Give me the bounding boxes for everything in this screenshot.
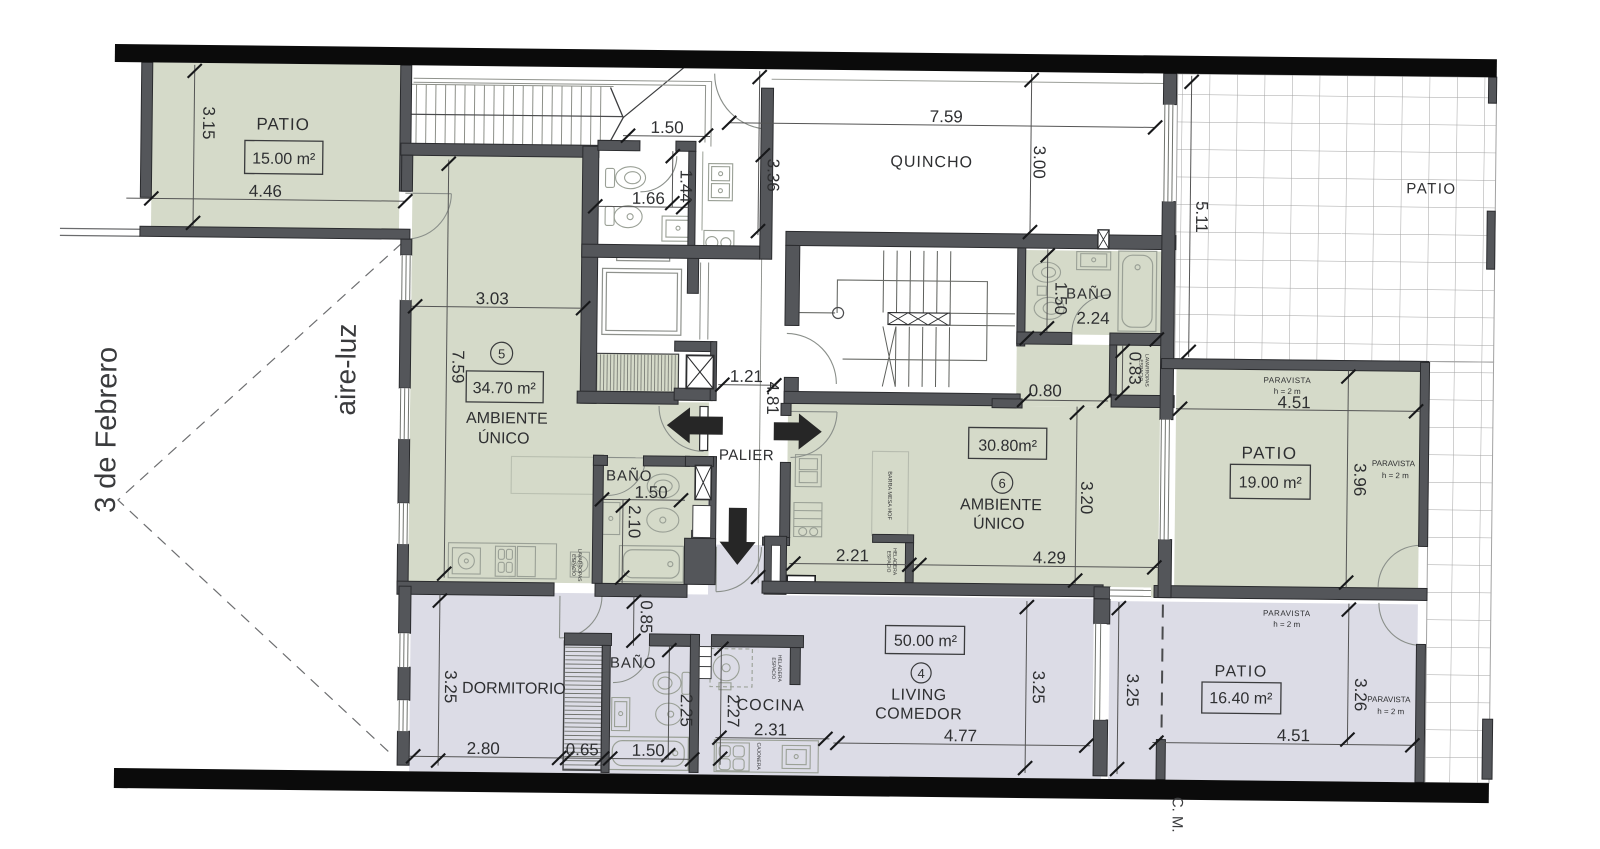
svg-text:PARAVISTA: PARAVISTA — [1372, 459, 1416, 468]
svg-text:1.50: 1.50 — [632, 741, 665, 760]
svg-text:PATIO: PATIO — [256, 115, 310, 135]
svg-text:3.36: 3.36 — [763, 159, 782, 192]
svg-text:4: 4 — [917, 666, 924, 681]
svg-text:C. M.: C. M. — [1168, 797, 1185, 833]
svg-text:HELADERA: HELADERA — [891, 548, 897, 576]
svg-text:COCINA: COCINA — [737, 697, 805, 715]
svg-text:PARAVISTA: PARAVISTA — [1263, 609, 1311, 619]
svg-text:BAÑO: BAÑO — [1066, 285, 1113, 303]
svg-text:3.20: 3.20 — [1077, 481, 1096, 514]
svg-text:AMBIENTE: AMBIENTE — [466, 410, 548, 428]
svg-text:34.70 m²: 34.70 m² — [473, 380, 537, 398]
svg-text:BARRA MESA HOF: BARRA MESA HOF — [886, 471, 893, 520]
svg-text:BAÑO: BAÑO — [606, 467, 653, 485]
svg-text:2.31: 2.31 — [754, 720, 787, 739]
svg-text:3.25: 3.25 — [1029, 671, 1048, 704]
svg-text:0.65: 0.65 — [566, 740, 599, 759]
svg-text:QUINCHO: QUINCHO — [890, 154, 973, 172]
svg-text:BAÑO: BAÑO — [610, 654, 657, 672]
svg-text:4.81: 4.81 — [763, 382, 782, 415]
svg-text:4.46: 4.46 — [249, 181, 282, 200]
svg-text:0.85: 0.85 — [637, 600, 656, 633]
svg-text:1.44: 1.44 — [676, 170, 695, 203]
svg-text:2.24: 2.24 — [1076, 309, 1109, 328]
svg-text:3 de Febrero: 3 de Febrero — [90, 347, 124, 513]
svg-text:ESPACIO: ESPACIO — [1137, 359, 1143, 381]
svg-text:DORMITORIO: DORMITORIO — [462, 680, 566, 698]
svg-text:LIVING: LIVING — [891, 687, 947, 705]
svg-text:4.51: 4.51 — [1277, 726, 1310, 745]
svg-text:5.11: 5.11 — [1192, 201, 1211, 233]
svg-text:15.00 m²: 15.00 m² — [252, 151, 316, 169]
svg-text:ESPACIO: ESPACIO — [570, 554, 576, 576]
svg-text:2.25: 2.25 — [677, 694, 696, 727]
svg-text:AMBIENTE: AMBIENTE — [960, 496, 1042, 514]
svg-text:3.03: 3.03 — [476, 289, 509, 308]
svg-text:h = 2 m: h = 2 m — [1273, 620, 1300, 629]
svg-text:7.59: 7.59 — [448, 350, 467, 383]
svg-text:h = 2 m: h = 2 m — [1377, 707, 1404, 716]
svg-text:ESPACIO: ESPACIO — [770, 657, 776, 679]
svg-text:0.80: 0.80 — [1029, 381, 1062, 400]
svg-text:PALIER: PALIER — [719, 447, 774, 465]
svg-text:COMEDOR: COMEDOR — [875, 705, 962, 723]
svg-text:19.00 m²: 19.00 m² — [1239, 474, 1303, 492]
svg-text:PATIO: PATIO — [1406, 180, 1456, 198]
svg-text:PATIO: PATIO — [1215, 663, 1268, 681]
svg-text:1.50: 1.50 — [634, 483, 667, 502]
svg-text:LAVARROPAS: LAVARROPAS — [576, 549, 582, 583]
svg-text:6: 6 — [999, 476, 1006, 491]
svg-text:HELADERA: HELADERA — [776, 655, 782, 683]
svg-text:PARAVISTA: PARAVISTA — [1367, 695, 1411, 704]
svg-text:1.50: 1.50 — [650, 118, 683, 137]
svg-text:4.77: 4.77 — [944, 726, 977, 745]
svg-text:ÚNICO: ÚNICO — [478, 428, 530, 448]
svg-text:3.25: 3.25 — [1123, 674, 1142, 707]
svg-text:CAJONERA: CAJONERA — [755, 742, 761, 770]
svg-text:2.10: 2.10 — [625, 505, 644, 538]
svg-text:50.00 m²: 50.00 m² — [894, 633, 958, 651]
svg-text:PARAVISTA: PARAVISTA — [1264, 376, 1312, 386]
svg-text:h = 2 m: h = 2 m — [1274, 387, 1301, 396]
svg-text:7.59: 7.59 — [930, 107, 963, 126]
svg-text:3.15: 3.15 — [199, 106, 218, 139]
svg-text:2.21: 2.21 — [836, 546, 869, 565]
svg-text:PATIO: PATIO — [1241, 443, 1297, 463]
svg-text:ÚNICO: ÚNICO — [973, 513, 1025, 533]
svg-text:30.80m²: 30.80m² — [978, 438, 1038, 456]
svg-text:aire-luz: aire-luz — [330, 323, 362, 415]
svg-text:3.96: 3.96 — [1350, 463, 1369, 496]
svg-text:3.00: 3.00 — [1030, 146, 1049, 179]
svg-text:16.40 m²: 16.40 m² — [1209, 690, 1273, 708]
svg-text:4.29: 4.29 — [1033, 548, 1066, 567]
svg-text:h = 2 m: h = 2 m — [1382, 471, 1409, 480]
svg-text:5: 5 — [498, 346, 505, 361]
svg-text:ESPACIO: ESPACIO — [885, 551, 891, 573]
svg-text:1.21: 1.21 — [730, 367, 763, 386]
svg-text:LAVARROPAS: LAVARROPAS — [1143, 354, 1149, 388]
svg-text:1.66: 1.66 — [632, 189, 665, 208]
svg-text:2.80: 2.80 — [467, 739, 500, 758]
svg-text:3.25: 3.25 — [441, 670, 460, 703]
